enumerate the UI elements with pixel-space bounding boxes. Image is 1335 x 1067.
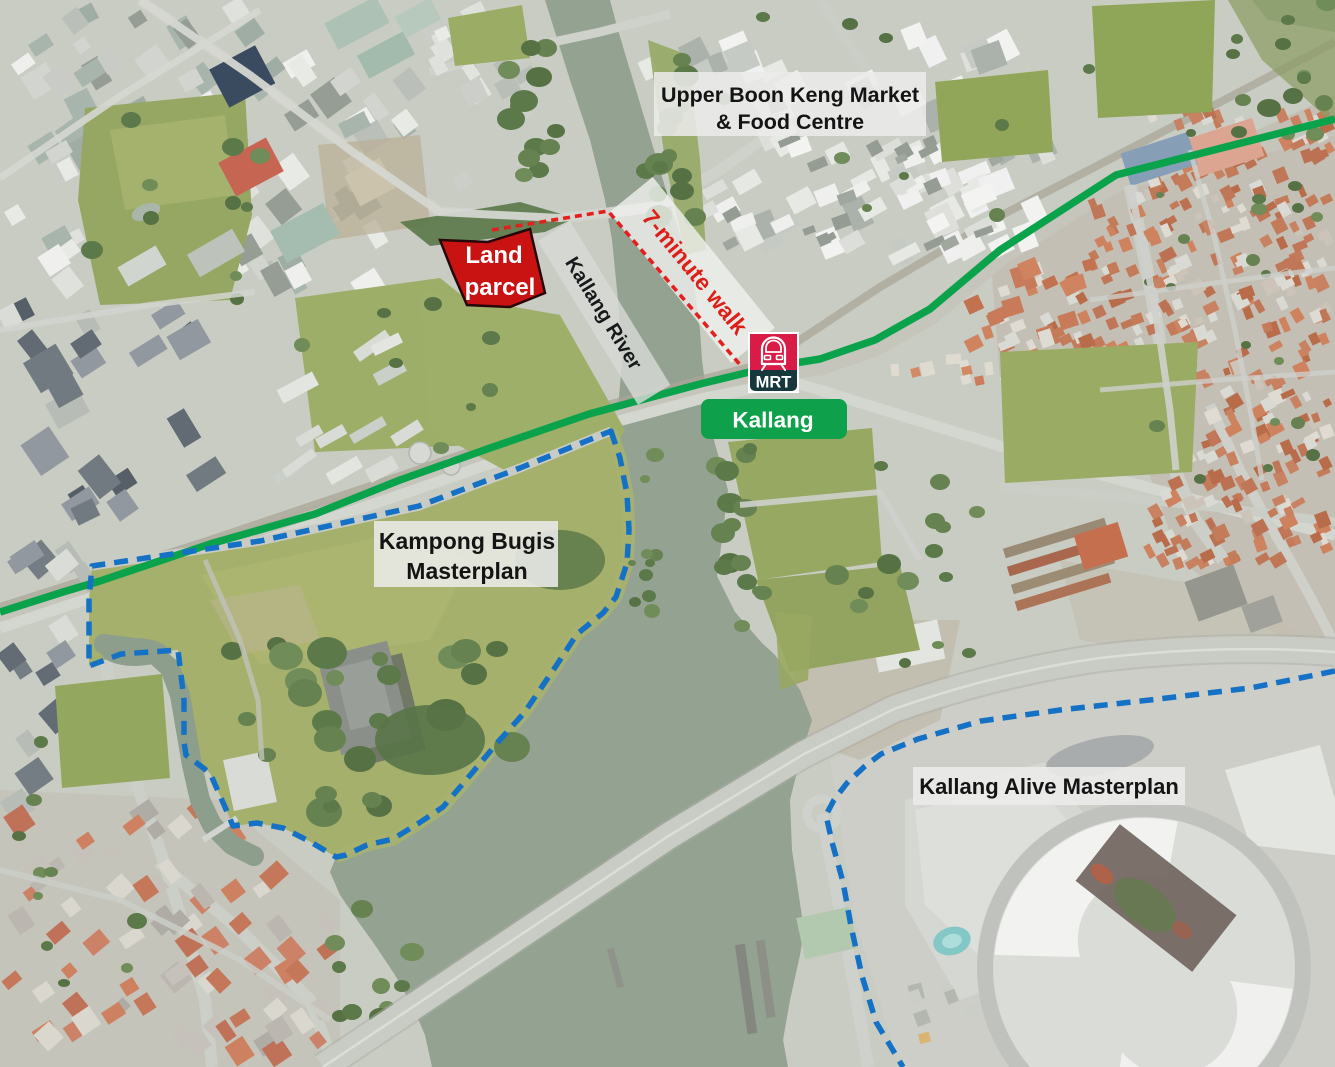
svg-text:Kallang Alive Masterplan: Kallang Alive Masterplan <box>919 774 1179 799</box>
svg-text:Kallang: Kallang <box>732 408 813 433</box>
svg-text:Masterplan: Masterplan <box>406 558 527 584</box>
svg-text:Upper Boon Keng Market: Upper Boon Keng Market <box>661 83 919 107</box>
svg-text:Kampong Bugis: Kampong Bugis <box>379 528 555 554</box>
svg-text:Land: Land <box>465 242 522 269</box>
svg-text:& Food Centre: & Food Centre <box>716 110 864 134</box>
svg-text:MRT: MRT <box>756 374 792 392</box>
svg-text:parcel: parcel <box>465 274 536 301</box>
